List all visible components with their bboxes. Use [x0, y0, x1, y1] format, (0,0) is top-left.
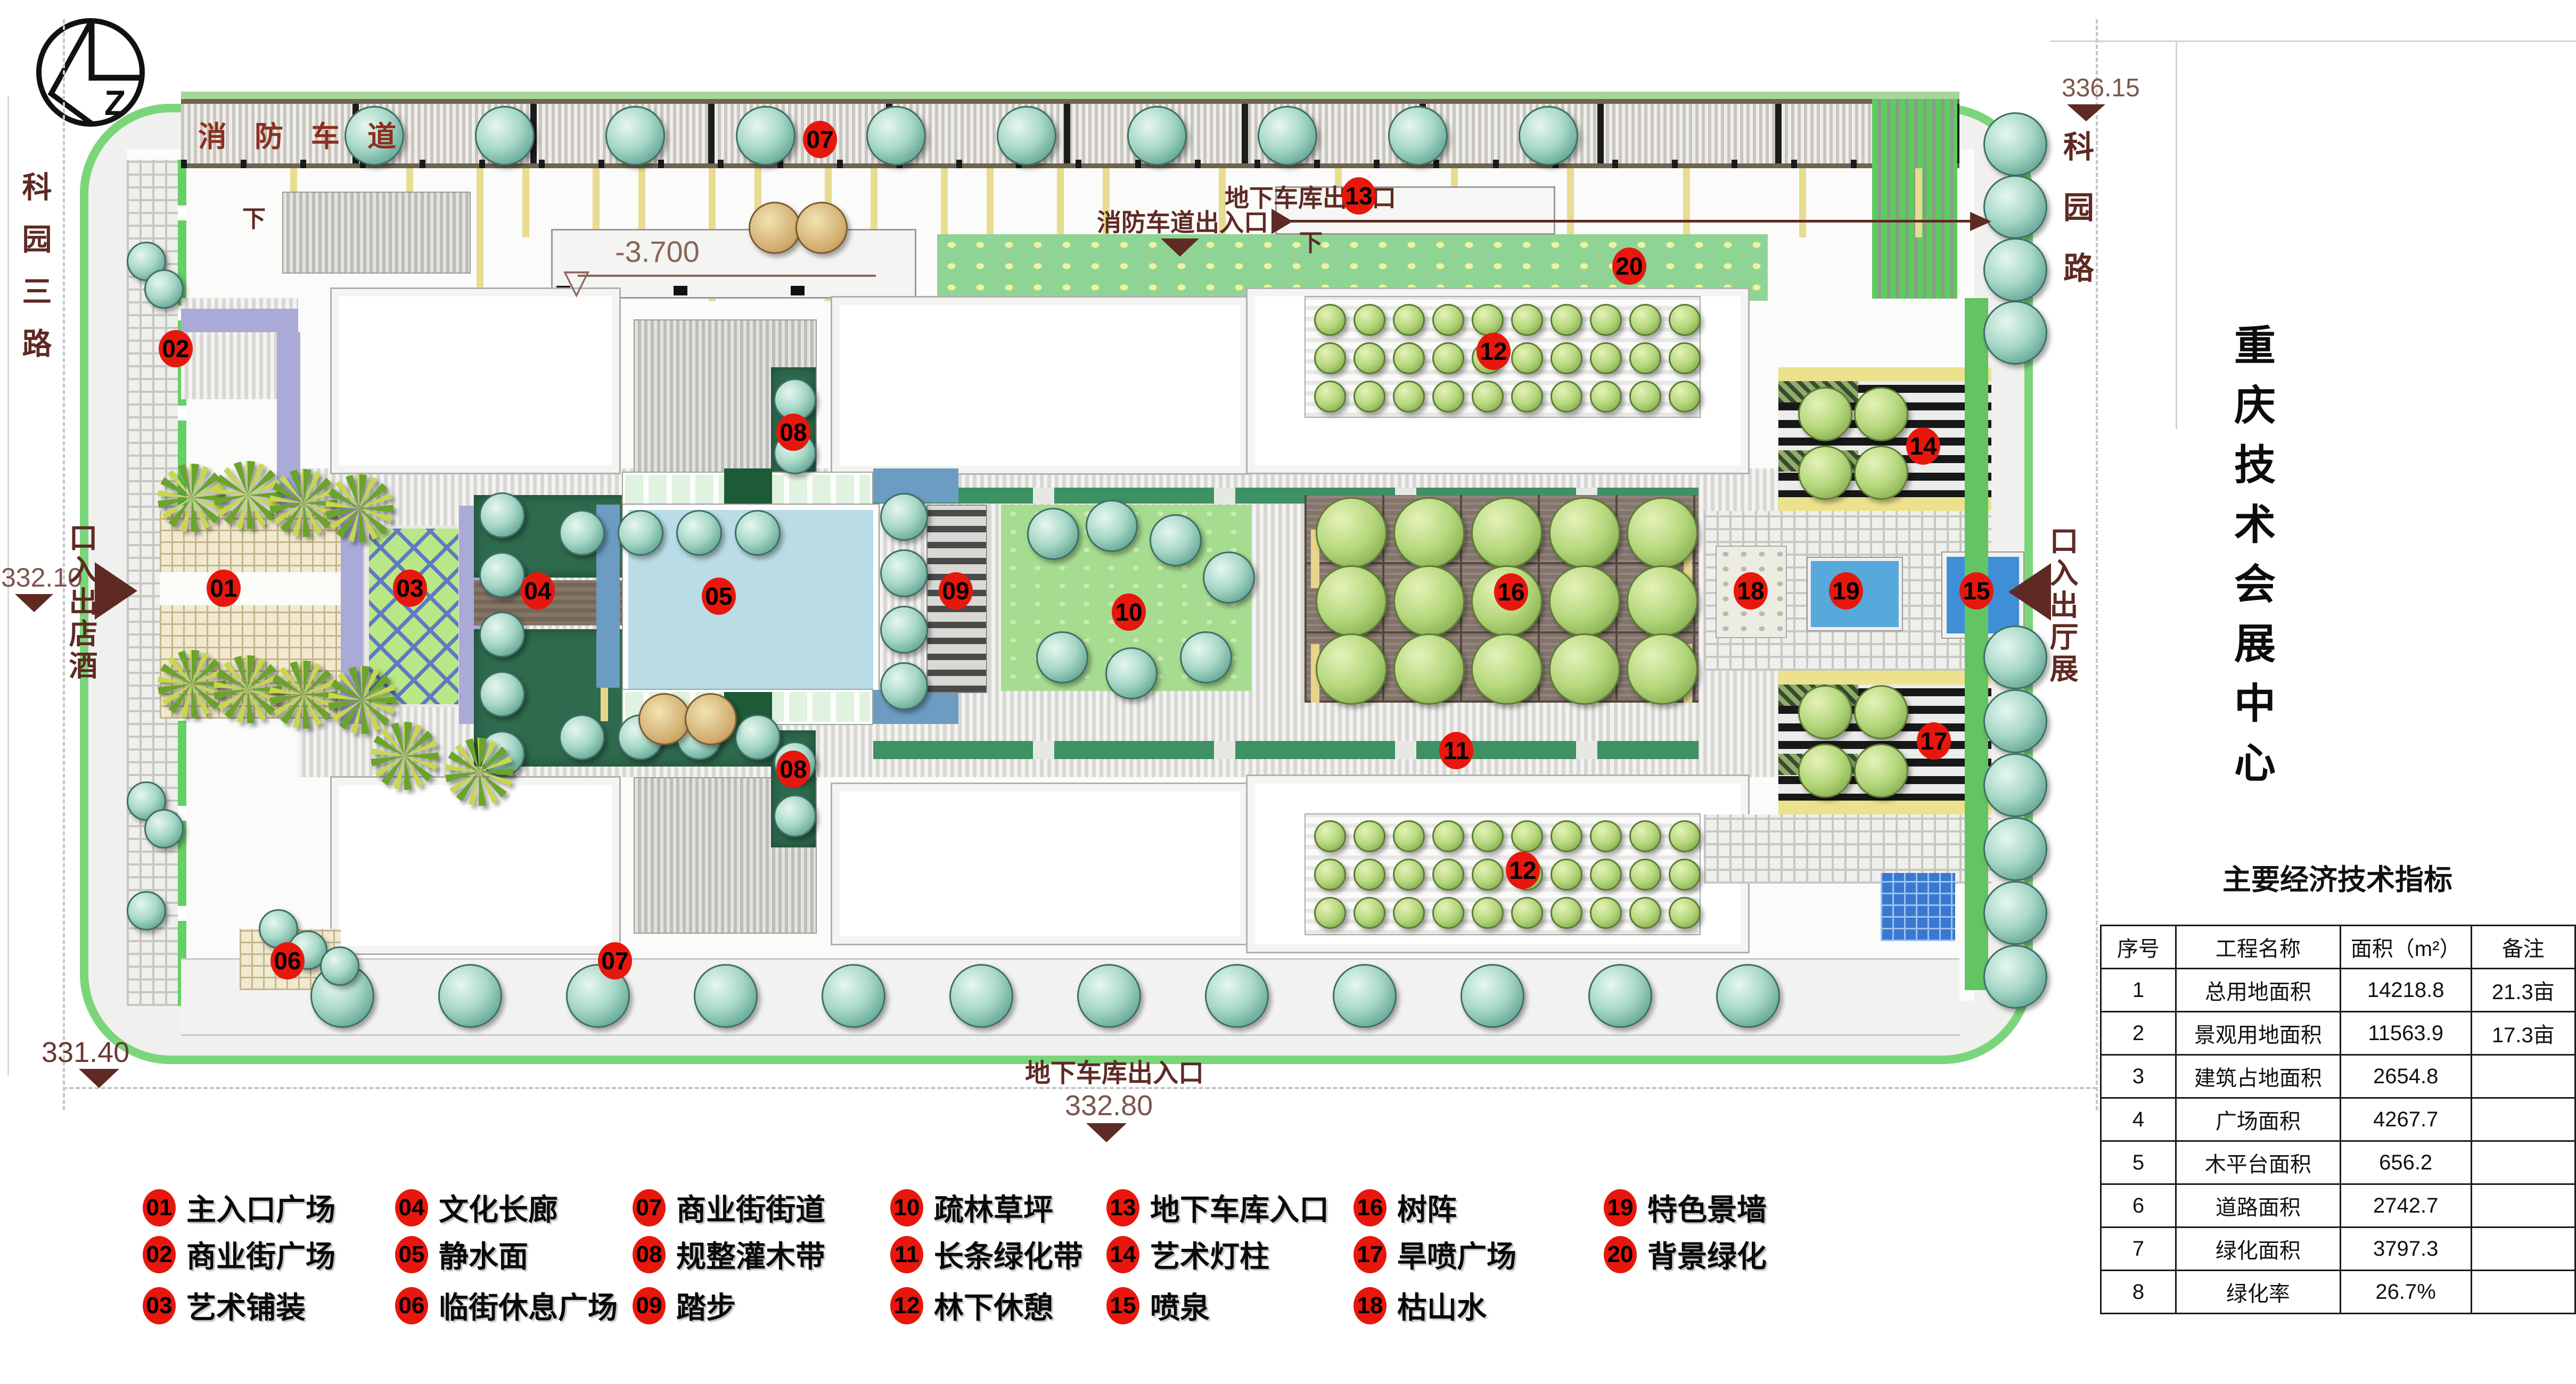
tree-icon: [880, 662, 928, 710]
tree-icon: [1629, 342, 1661, 374]
tree-icon: [949, 964, 1013, 1028]
tree-icon: [559, 510, 605, 556]
tree-icon: [1353, 381, 1385, 413]
tree-icon: [1629, 304, 1661, 336]
tree-icon: [1669, 820, 1701, 852]
table-title: 主要经济技术指标: [2183, 856, 2492, 898]
fire-lane-posts: [181, 160, 1959, 168]
fire-lane-label: 消防车道: [198, 113, 424, 155]
tree-icon: [1550, 897, 1582, 929]
tree-icon: [1983, 238, 2047, 302]
legend-badge: 01: [143, 1189, 176, 1226]
legend-badge: 06: [395, 1287, 428, 1324]
table-cell: 2: [2101, 1012, 2176, 1055]
legend-item-15: 15喷泉: [1106, 1284, 1210, 1327]
legend-badge: 11: [890, 1236, 923, 1273]
tree-icon: [144, 269, 184, 309]
tree-icon: [1353, 820, 1385, 852]
tree-icon: [1314, 304, 1346, 336]
legend-item-20: 20背景绿化: [1604, 1233, 1767, 1276]
tree-icon: [735, 714, 781, 760]
plan-marker-01: 01: [207, 570, 241, 607]
green-belt-bottom: [873, 741, 1699, 759]
legend-label: 特色景墙: [1647, 1186, 1767, 1229]
entrance-plaza-walk: [160, 572, 341, 605]
tree-icon: [1550, 381, 1582, 413]
tree-icon: [1550, 859, 1582, 891]
tree-icon: [479, 552, 525, 598]
legend-label: 规整灌木带: [676, 1233, 825, 1276]
legend-item-08: 08规整灌木带: [633, 1233, 825, 1276]
tree-icon: [1353, 342, 1385, 374]
tree-icon: [1854, 685, 1908, 739]
plan-marker-07: 07: [598, 942, 632, 979]
tree-icon: [1205, 964, 1269, 1028]
legend-item-07: 07商业街街道: [633, 1186, 825, 1229]
legend-badge: 16: [1353, 1189, 1387, 1226]
tree-icon: [1627, 497, 1698, 569]
fire-lane-band: [181, 99, 1959, 168]
tree-icon: [1127, 106, 1187, 166]
legend-badge: 05: [395, 1236, 428, 1273]
table-cell: 14218.8: [2340, 969, 2471, 1012]
level-bl-label: 331.40: [42, 1036, 129, 1069]
legend-label: 临街休息广场: [439, 1284, 618, 1327]
table-cell: 绿化面积: [2176, 1228, 2341, 1271]
plan-marker-16: 16: [1494, 573, 1528, 611]
table-header-cell: 序号: [2101, 926, 2176, 969]
tree-icon: [1549, 497, 1620, 569]
tree-icon: [1393, 304, 1425, 336]
road-label-left: 科园三路: [13, 171, 56, 380]
table-cell: 656.2: [2340, 1141, 2471, 1184]
legend-label: 商业街广场: [186, 1233, 335, 1276]
north-letter: Z: [104, 83, 126, 122]
tree-icon: [1983, 945, 2047, 1009]
table-header-cell: 工程名称: [2176, 926, 2341, 969]
plan-marker-05: 05: [702, 578, 736, 615]
plan-marker-13: 13: [1342, 177, 1376, 215]
table-cell: 26.7%: [2340, 1271, 2471, 1314]
legend-label: 喷泉: [1150, 1284, 1210, 1327]
tree-icon: [1983, 689, 2047, 753]
legend-badge: 10: [890, 1189, 923, 1226]
tree-icon: [1629, 820, 1661, 852]
tree-icon: [1511, 897, 1543, 929]
table-cell: 4: [2101, 1098, 2176, 1141]
plan-marker-07: 07: [803, 121, 837, 158]
tree-icon: [1353, 304, 1385, 336]
palm-icon: [371, 722, 439, 790]
legend-badge: 14: [1106, 1236, 1139, 1273]
hall-entrance-label: 口入出厅展: [2040, 526, 2082, 686]
tree-icon: [1590, 381, 1622, 413]
tree-icon: [1180, 631, 1232, 683]
tree-icon: [676, 510, 722, 556]
legend-label: 艺术灯柱: [1150, 1233, 1269, 1276]
ramp-top-left: [282, 192, 471, 274]
table-cell: 建筑占地面积: [2176, 1055, 2341, 1098]
ramp-level-label: -3.700: [615, 234, 700, 269]
road-label-right: 科园路: [2053, 130, 2098, 312]
tree-icon: [1627, 565, 1698, 637]
tree-icon: [1550, 820, 1582, 852]
tree-icon: [1432, 820, 1464, 852]
table-cell: [2471, 1098, 2575, 1141]
tree-icon: [1627, 633, 1698, 705]
tree-icon: [1316, 633, 1387, 705]
tree-icon: [1983, 112, 2047, 176]
legend-label: 树阵: [1397, 1186, 1457, 1229]
tree-icon: [1314, 897, 1346, 929]
tree-icon: [1314, 342, 1346, 374]
tree-icon: [795, 202, 848, 254]
legend-item-19: 19特色景墙: [1604, 1186, 1767, 1229]
plan-marker-09: 09: [939, 572, 973, 609]
table-cell: 8: [2101, 1271, 2176, 1314]
legend-item-04: 04文化长廊: [395, 1186, 558, 1229]
tree-icon: [1854, 446, 1908, 500]
tree-icon: [1086, 500, 1138, 552]
tree-icon: [1150, 514, 1202, 566]
table-header-cell: 备注: [2471, 926, 2575, 969]
tree-icon: [997, 106, 1056, 166]
tree-icon: [1472, 820, 1504, 852]
tree-icon: [1388, 106, 1448, 166]
down-top-label: 下: [1299, 224, 1323, 258]
level-tr-triangle: [2067, 104, 2105, 121]
tree-icon: [1471, 633, 1543, 705]
tree-icon: [1798, 387, 1852, 441]
bed-square-ne: [724, 468, 772, 504]
tree-icon: [1432, 342, 1464, 374]
table-cell: [2471, 1184, 2575, 1228]
plan-marker-19: 19: [1829, 572, 1863, 609]
table-cell: 木平台面积: [2176, 1141, 2341, 1184]
tree-icon: [1798, 744, 1852, 798]
indicators-table: 序号工程名称面积（m²）备注1总用地面积14218.821.3亩2景观用地面积1…: [2100, 925, 2576, 1314]
tree-icon: [1983, 817, 2047, 881]
boundary-line-right: [2096, 19, 2098, 1110]
tree-icon: [1472, 859, 1504, 891]
tree-icon: [1798, 446, 1852, 500]
plan-marker-02: 02: [159, 330, 193, 367]
top-green-hedge: [181, 92, 1959, 99]
table-header-cell: 面积（m²）: [2340, 926, 2471, 969]
tree-icon: [1472, 304, 1504, 336]
parking-arrow-head: [1970, 212, 1991, 231]
tree-icon: [1669, 897, 1701, 929]
building-top-middle: [831, 296, 1249, 475]
legend-label: 商业街街道: [676, 1186, 825, 1229]
tree-icon: [1669, 304, 1701, 336]
water-grid-square: [1881, 873, 1955, 941]
tree-icon: [880, 549, 928, 597]
level-left-triangle: [15, 594, 53, 612]
legend-badge: 20: [1604, 1236, 1637, 1273]
table-cell: [2471, 1141, 2575, 1184]
tree-icon: [1393, 381, 1425, 413]
legend-item-13: 13地下车库入口: [1106, 1186, 1329, 1229]
plan-marker-10: 10: [1112, 594, 1146, 631]
ramp-level-line: [578, 275, 876, 277]
tree-icon: [1983, 753, 2047, 817]
plan-marker-06: 06: [270, 942, 305, 979]
tree-icon: [1461, 964, 1524, 1028]
tree-icon: [479, 492, 525, 538]
legend-label: 踏步: [676, 1284, 736, 1327]
tree-icon: [1027, 508, 1079, 560]
table-cell: 4267.7: [2340, 1098, 2471, 1141]
tree-icon: [1393, 820, 1425, 852]
legend-label: 艺术铺装: [186, 1284, 306, 1327]
parking-arrow-line: [1278, 220, 1970, 223]
legend-badge: 13: [1106, 1189, 1139, 1226]
plan-marker-08: 08: [776, 414, 810, 451]
tree-icon: [144, 809, 184, 848]
tree-icon: [1393, 342, 1425, 374]
level-tr-label: 336.15: [2062, 73, 2140, 103]
tree-icon: [475, 106, 535, 166]
tree-icon: [880, 606, 928, 654]
hotel-entrance-label: 口入出店酒: [60, 523, 102, 682]
table-cell: 1: [2101, 969, 2176, 1012]
tree-icon: [1511, 304, 1543, 336]
plan-marker-03: 03: [393, 570, 427, 607]
tree-icon: [1983, 175, 2047, 239]
tree-icon: [1983, 301, 2047, 365]
tree-icon: [559, 714, 605, 760]
legend-item-02: 02商业街广场: [143, 1233, 335, 1276]
project-title: 重庆技术会展中心: [2221, 324, 2281, 801]
tree-icon: [736, 106, 795, 166]
lavender-band-1: [181, 309, 298, 332]
tree-icon: [1432, 859, 1464, 891]
tree-icon: [127, 891, 166, 930]
table-cell: 21.3亩: [2471, 969, 2575, 1012]
plan-marker-11: 11: [1439, 732, 1473, 769]
tree-icon: [618, 510, 663, 556]
tree-icon: [1590, 342, 1622, 374]
tree-icon: [1077, 964, 1141, 1028]
legend-label: 枯山水: [1397, 1284, 1487, 1327]
tree-icon: [749, 202, 801, 254]
site-plan-sheet: Z: [0, 0, 2576, 1384]
tree-icon: [605, 106, 665, 166]
tree-icon: [1314, 820, 1346, 852]
tree-icon: [1549, 565, 1620, 637]
tree-icon: [1432, 381, 1464, 413]
top-right-line-v: [2176, 40, 2177, 429]
tree-icon: [1854, 744, 1908, 798]
legend-badge: 07: [633, 1189, 666, 1226]
tree-icon: [438, 964, 502, 1028]
tree-icon: [1590, 897, 1622, 929]
zebra-yellow-n1: [1778, 367, 1991, 381]
legend-badge: 09: [633, 1287, 666, 1324]
legend-label: 静水面: [439, 1233, 528, 1276]
fire-exit-down-triangle: [1161, 238, 1199, 257]
plan-marker-04: 04: [521, 572, 555, 609]
legend-badge: 19: [1604, 1189, 1637, 1226]
building-bottom-middle: [831, 782, 1249, 945]
plan-marker-17: 17: [1917, 722, 1951, 760]
tree-icon: [1393, 633, 1465, 705]
plan-marker-18: 18: [1734, 572, 1768, 609]
tree-icon: [1629, 381, 1661, 413]
table-cell: [2471, 1271, 2575, 1314]
table-cell: 景观用地面积: [2176, 1012, 2341, 1055]
palm-icon: [269, 661, 338, 729]
tree-icon: [866, 106, 926, 166]
table-cell: 总用地面积: [2176, 969, 2341, 1012]
tree-icon: [1393, 897, 1425, 929]
legend-item-11: 11长条绿化带: [890, 1233, 1083, 1276]
legend-item-06: 06临街休息广场: [395, 1284, 618, 1327]
tree-icon: [1036, 631, 1088, 683]
legend-badge: 03: [143, 1287, 176, 1324]
tree-icon: [1590, 859, 1622, 891]
table-cell: [2471, 1055, 2575, 1098]
legend-label: 背景绿化: [1647, 1233, 1767, 1276]
tree-icon: [694, 964, 758, 1028]
tree-icon: [1511, 342, 1543, 374]
tree-icon: [1629, 859, 1661, 891]
table-cell: 绿化率: [2176, 1271, 2341, 1314]
parking-exit-bottom-label: 地下车库出入口: [1025, 1052, 1204, 1089]
legend-item-10: 10疏林草坪: [890, 1186, 1053, 1229]
top-right-line: [2050, 40, 2576, 42]
tree-icon: [1258, 106, 1317, 166]
legend-item-16: 16树阵: [1353, 1186, 1457, 1229]
palm-icon: [325, 474, 393, 542]
plan-marker-12: 12: [1476, 333, 1511, 370]
table-cell: 17.3亩: [2471, 1012, 2575, 1055]
tree-icon: [1519, 106, 1578, 166]
tree-icon: [1432, 304, 1464, 336]
tree-icon: [1353, 859, 1385, 891]
tree-icon: [1203, 551, 1255, 604]
table-cell: 6: [2101, 1184, 2176, 1228]
legend-item-14: 14艺术灯柱: [1106, 1233, 1269, 1276]
table-cell: 11563.9: [2340, 1012, 2471, 1055]
tree-icon: [1105, 647, 1158, 699]
legend-item-05: 05静水面: [395, 1233, 528, 1276]
tree-icon: [1854, 387, 1908, 441]
legend-badge: 12: [890, 1287, 923, 1324]
legend-badge: 02: [143, 1236, 176, 1273]
tree-icon: [1472, 897, 1504, 929]
tree-icon: [1983, 625, 2047, 689]
zebra-yellow-s2: [1778, 801, 1991, 814]
tree-icon: [1549, 633, 1620, 705]
tree-icon: [822, 964, 885, 1028]
plan-marker-20: 20: [1612, 248, 1646, 285]
building-top-left: [330, 287, 621, 474]
tree-icon: [685, 693, 737, 745]
legend-item-18: 18枯山水: [1353, 1284, 1487, 1327]
tree-icon: [1353, 897, 1385, 929]
tree-icon: [320, 946, 359, 986]
legend-item-03: 03艺术铺装: [143, 1284, 306, 1327]
plan-marker-12: 12: [1506, 852, 1540, 889]
table-cell: 广场面积: [2176, 1098, 2341, 1141]
table-cell: 3: [2101, 1055, 2176, 1098]
tree-icon: [1550, 304, 1582, 336]
tree-icon: [1550, 342, 1582, 374]
legend-item-01: 01主入口广场: [143, 1186, 335, 1229]
tree-icon: [1314, 859, 1346, 891]
tree-icon: [1511, 381, 1543, 413]
table-cell: 道路面积: [2176, 1184, 2341, 1228]
ramp-level-triangle: ▽: [563, 262, 589, 302]
table-cell: 2654.8: [2340, 1055, 2471, 1098]
table-cell: 3797.3: [2340, 1228, 2471, 1271]
legend-badge: 18: [1353, 1287, 1387, 1324]
tree-icon: [774, 795, 816, 837]
tree-icon: [1629, 897, 1661, 929]
palm-icon: [445, 738, 513, 806]
palm-icon: [328, 666, 396, 734]
tree-icon: [1314, 381, 1346, 413]
tree-icon: [1669, 859, 1701, 891]
plan-marker-14: 14: [1906, 427, 1940, 465]
tree-icon: [479, 671, 525, 717]
tree-icon: [1432, 897, 1464, 929]
tree-icon: [880, 493, 928, 541]
plan-marker-15: 15: [1959, 572, 1993, 609]
zebra-yellow-s1: [1778, 671, 1991, 685]
tree-icon: [1798, 685, 1852, 739]
tree-icon: [479, 612, 525, 657]
down-left-label: 下: [242, 200, 266, 234]
tree-icon: [1669, 342, 1701, 374]
tree-icon: [1393, 859, 1425, 891]
legend-label: 长条绿化带: [934, 1233, 1083, 1276]
level-bl-triangle: [79, 1069, 119, 1088]
level-bc-label: 332.80: [1065, 1089, 1153, 1122]
tree-icon: [1316, 565, 1387, 637]
legend-item-12: 12林下休憩: [890, 1284, 1053, 1327]
table-cell: 5: [2101, 1141, 2176, 1184]
tree-icon: [735, 510, 781, 556]
legend-item-17: 17旱喷广场: [1353, 1233, 1516, 1276]
tree-icon: [1471, 497, 1543, 569]
tree-icon: [1393, 497, 1465, 569]
tree-icon: [1333, 964, 1397, 1028]
tree-icon: [1393, 565, 1465, 637]
legend-label: 疏林草坪: [934, 1186, 1053, 1229]
legend-label: 旱喷广场: [1397, 1233, 1516, 1276]
tree-icon: [1983, 881, 2047, 945]
legend-badge: 17: [1353, 1236, 1387, 1273]
level-bc-triangle: [1086, 1123, 1127, 1142]
tree-icon: [1590, 820, 1622, 852]
tree-icon: [1316, 497, 1387, 569]
table-cell: 2742.7: [2340, 1184, 2471, 1228]
east-green-strip: [1965, 298, 1988, 990]
tree-icon: [1716, 964, 1780, 1028]
legend-label: 主入口广场: [186, 1186, 335, 1229]
tree-icon: [638, 693, 691, 745]
plan-marker-08: 08: [776, 751, 810, 788]
legend-badge: 08: [633, 1236, 666, 1273]
legend-label: 地下车库入口: [1150, 1186, 1329, 1229]
legend-label: 林下休憩: [934, 1284, 1053, 1327]
tree-icon: [1588, 964, 1652, 1028]
legend-badge: 15: [1106, 1287, 1139, 1324]
tree-icon: [1590, 304, 1622, 336]
